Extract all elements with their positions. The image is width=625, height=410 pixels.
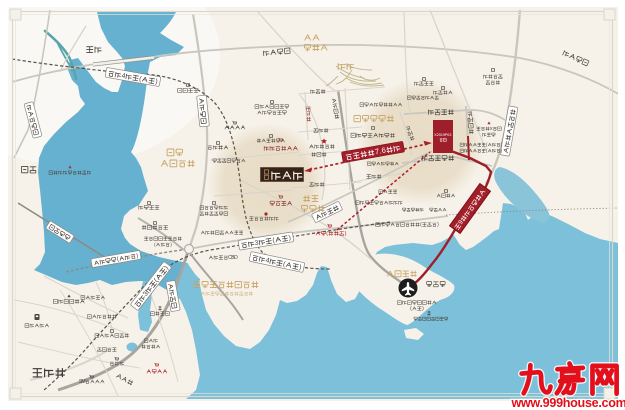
svg-text:X: X	[490, 126, 493, 131]
svg-text:): )	[345, 231, 347, 237]
svg-text:M: M	[81, 379, 85, 385]
svg-text:3: 3	[449, 133, 451, 137]
svg-text:www.999house.com: www.999house.com	[510, 396, 625, 410]
svg-text:D: D	[234, 255, 238, 261]
svg-text:(: (	[326, 231, 328, 237]
